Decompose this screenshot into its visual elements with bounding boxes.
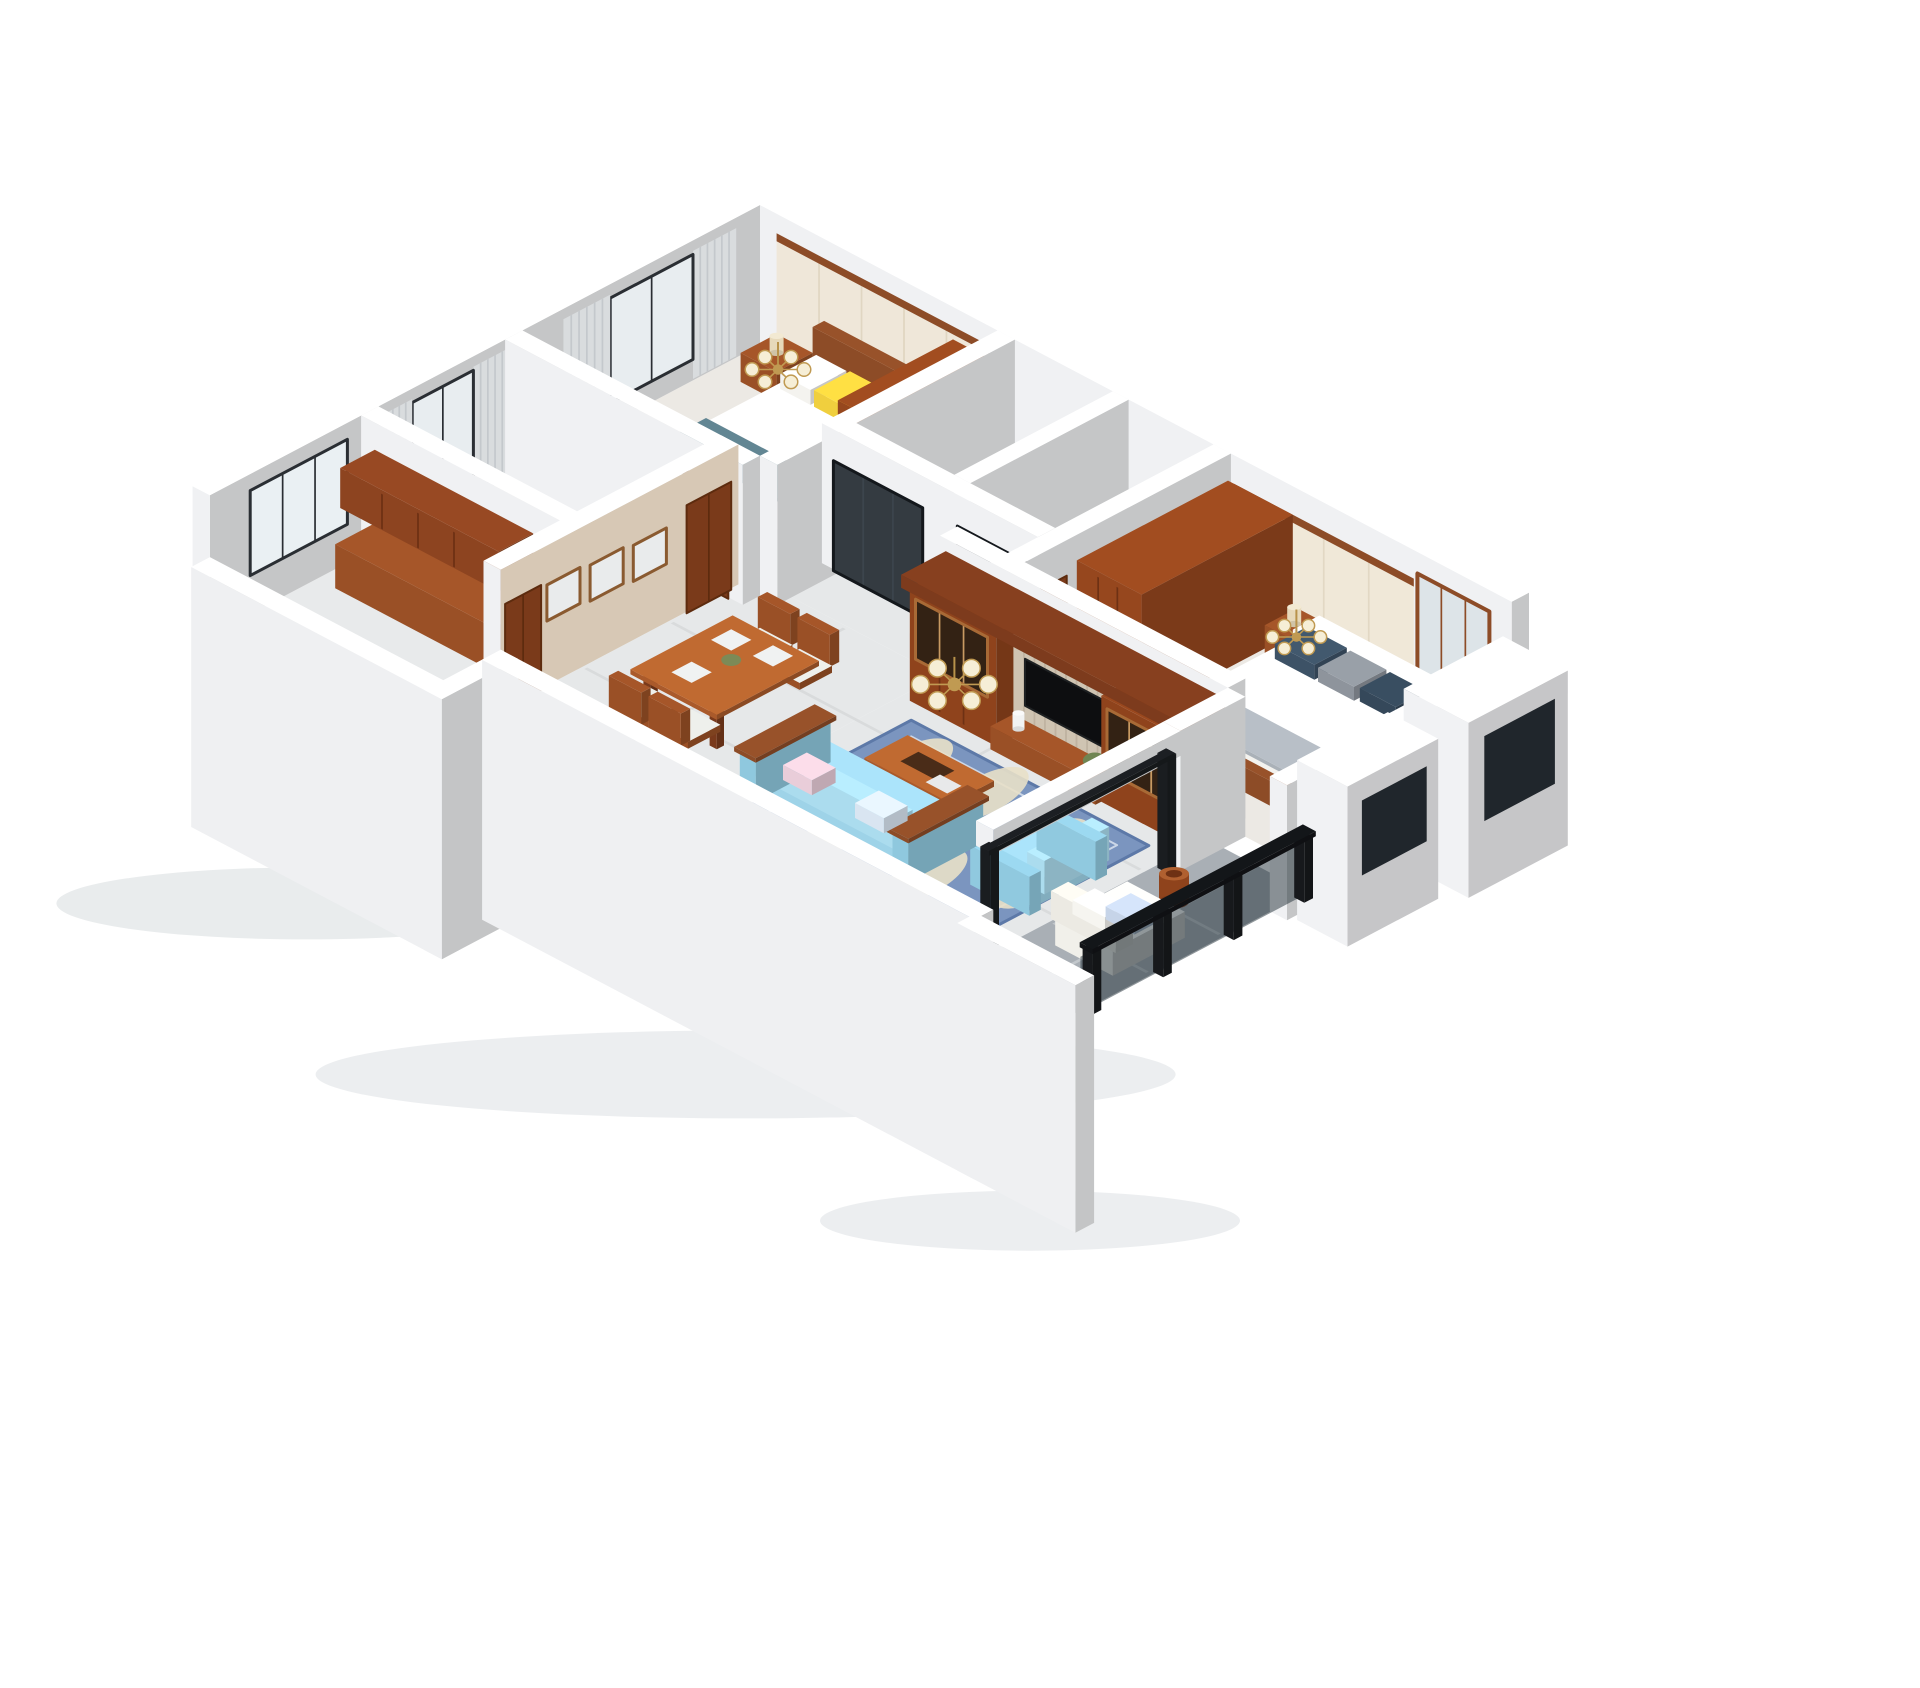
master-table-lamp-top: [1287, 604, 1301, 610]
bedroom2-curtain-left-line: [721, 235, 723, 364]
armchair-armrest-side: [1029, 871, 1041, 916]
wall-bedroom2-study-side: [743, 456, 760, 605]
kitchen-cabinet-door-lines-line: [381, 494, 383, 530]
bedroom2-chandelier-shade: [784, 350, 798, 364]
bedroom2-chandelier-shade: [797, 363, 811, 377]
master-chandelier-hub: [1292, 632, 1302, 642]
balcony-door-frame-post-side: [1168, 754, 1177, 874]
living-room-chandelier-shade: [929, 659, 947, 677]
bedroom2-chandelier-hub: [773, 364, 783, 374]
dining-door-wood-line: [708, 493, 710, 602]
bedroom2-curtain-left-line: [699, 247, 701, 376]
master-chandelier-shade: [1278, 642, 1290, 654]
console-vase-base: [1012, 726, 1024, 731]
railing-post-side: [1163, 911, 1172, 978]
bathroom1-glass-sliding-door-line: [892, 492, 894, 603]
study-curtain-left-line: [501, 351, 503, 480]
living-room-chandelier-shade: [963, 659, 981, 677]
dining-chair-back-side: [681, 709, 690, 746]
bedroom2-curtain-left-line: [707, 243, 709, 372]
living-room-chandelier-hub: [948, 678, 962, 692]
dining-chair-back-side: [830, 630, 839, 667]
master-chandelier-shade: [1314, 631, 1326, 643]
floorplan-svg: [0, 0, 1920, 1688]
bedroom2-curtain-left-line: [714, 239, 716, 368]
bedroom2-chandelier-shade: [784, 375, 798, 389]
bedroom2-table-lamp-top: [770, 333, 784, 339]
living-room-chandelier-shade: [912, 676, 930, 694]
wall-balcony-parapet-side: [1075, 975, 1094, 1232]
kitchen-cabinet-door-lines-line: [453, 532, 455, 568]
dining-centerpiece-plant: [721, 654, 741, 666]
balcony-door-frame-post-front: [1157, 753, 1167, 873]
kitchen-window-line: [282, 473, 284, 559]
wall-bedroom2-bathroom-front: [760, 456, 777, 605]
wall-kitchen-step-front: [425, 690, 442, 959]
bedroom2-window-line: [651, 276, 653, 382]
balcony-round-stool-inner: [1166, 870, 1183, 878]
living-room-chandelier-shade: [963, 692, 981, 710]
master-chandelier-shade: [1266, 631, 1278, 643]
study-curtain-left-line: [494, 355, 496, 484]
master-chandelier-shade: [1302, 619, 1314, 631]
console-vase-top: [1012, 710, 1024, 715]
kitchen-window-line: [314, 456, 316, 542]
kitchen-cabinet-door-lines-line: [417, 513, 419, 549]
living-room-chandelier-shade: [929, 692, 947, 710]
bathroom1-glass-sliding-door-line: [862, 476, 864, 587]
living-room-chandelier-shade: [980, 676, 998, 694]
bedroom2-chandelier-shade: [758, 350, 772, 364]
railing-post-side: [1304, 836, 1313, 903]
bedroom2-chandelier-shade: [758, 375, 772, 389]
armchair-armrest-side: [1096, 836, 1108, 881]
master-chandelier-shade: [1278, 619, 1290, 631]
railing-post-side: [1234, 874, 1243, 941]
bedroom2-curtain-left-line: [728, 231, 730, 360]
bedroom2-chandelier-shade: [745, 363, 759, 377]
master-chandelier-shade: [1302, 642, 1314, 654]
apartment-3d-render: [0, 0, 1920, 1688]
